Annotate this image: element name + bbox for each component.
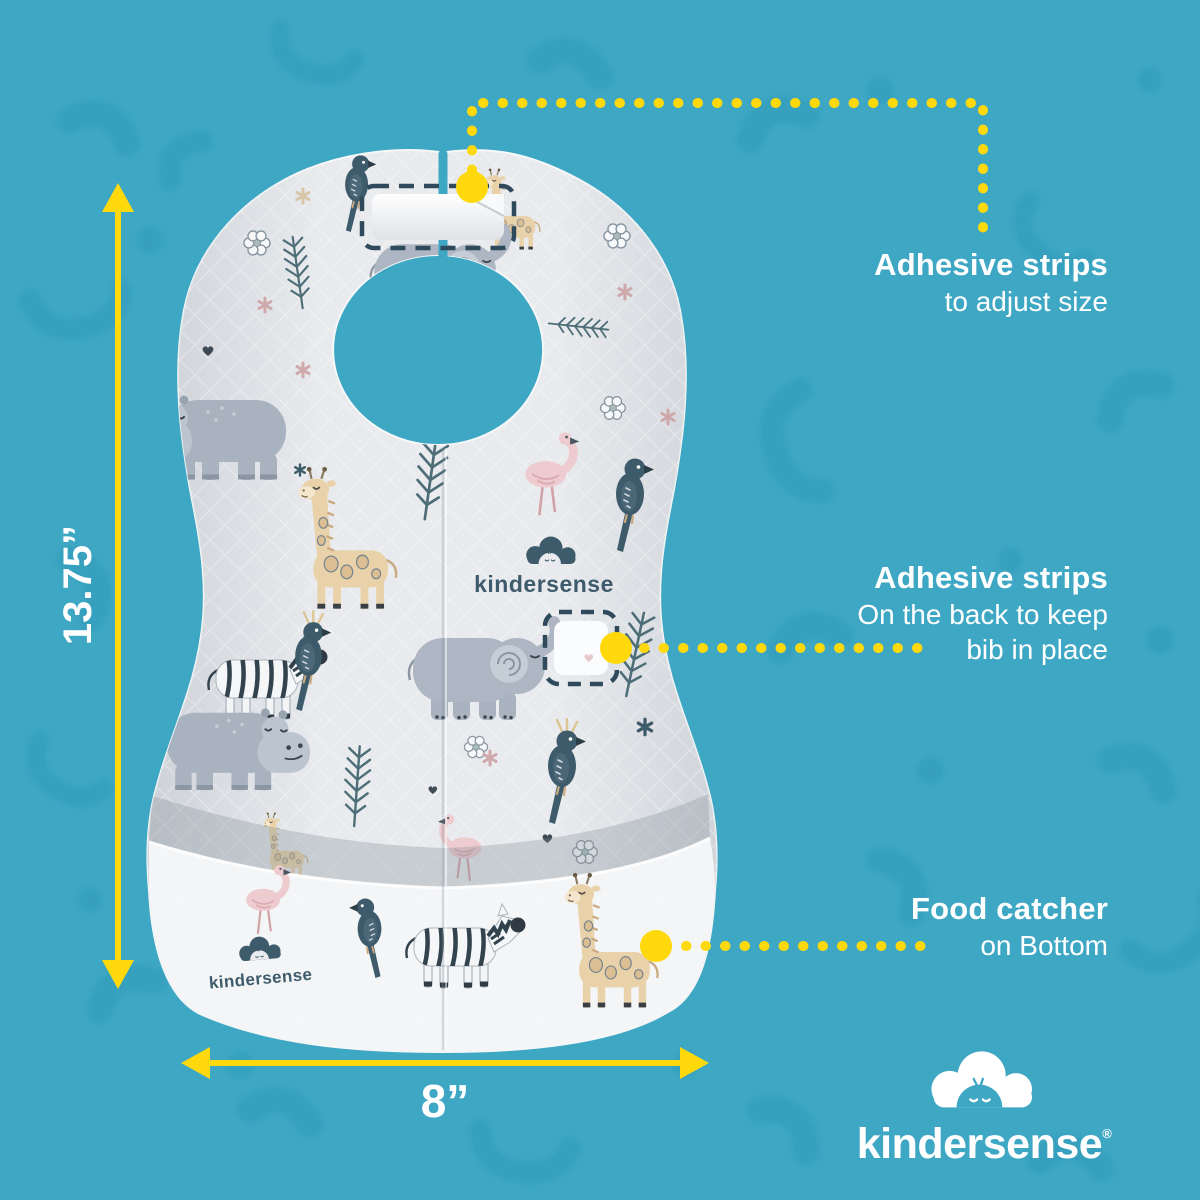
callout-line: On the back to keep <box>857 597 1108 632</box>
cloud-baby-logo-icon <box>922 1048 1046 1112</box>
adhesive-strip-top <box>362 186 514 248</box>
callout-adhesive-strips-back: Adhesive strips On the back to keep bib … <box>857 559 1108 667</box>
brand-logo: kindersense® <box>854 1048 1114 1164</box>
callout-title: Food catcher <box>911 890 1108 928</box>
callout-line: bib in place <box>857 632 1108 667</box>
brand-wordmark: kindersense® <box>854 1114 1114 1164</box>
callout-subtitle: to adjust size <box>874 284 1108 319</box>
anchor-dot-adhesive-top <box>456 171 488 203</box>
anchor-dot-food-catcher <box>640 930 672 962</box>
callout-subtitle: on Bottom <box>911 928 1108 963</box>
callout-food-catcher: Food catcher on Bottom <box>911 890 1108 963</box>
bib-center-logo-text: kindersense <box>474 571 614 597</box>
anchor-dot-adhesive-back <box>600 632 632 664</box>
height-dimension-label: 13.75” <box>55 485 101 685</box>
registered-mark: ® <box>1102 1126 1111 1141</box>
brand-wordmark-text: kindersense <box>857 1120 1102 1168</box>
product-infographic: kindersense kindersense <box>0 0 1200 1200</box>
callout-adhesive-strips-top: Adhesive strips to adjust size <box>874 246 1108 319</box>
width-dimension-label: 8” <box>345 1074 545 1128</box>
callout-title: Adhesive strips <box>857 559 1108 597</box>
callout-title: Adhesive strips <box>874 246 1108 284</box>
